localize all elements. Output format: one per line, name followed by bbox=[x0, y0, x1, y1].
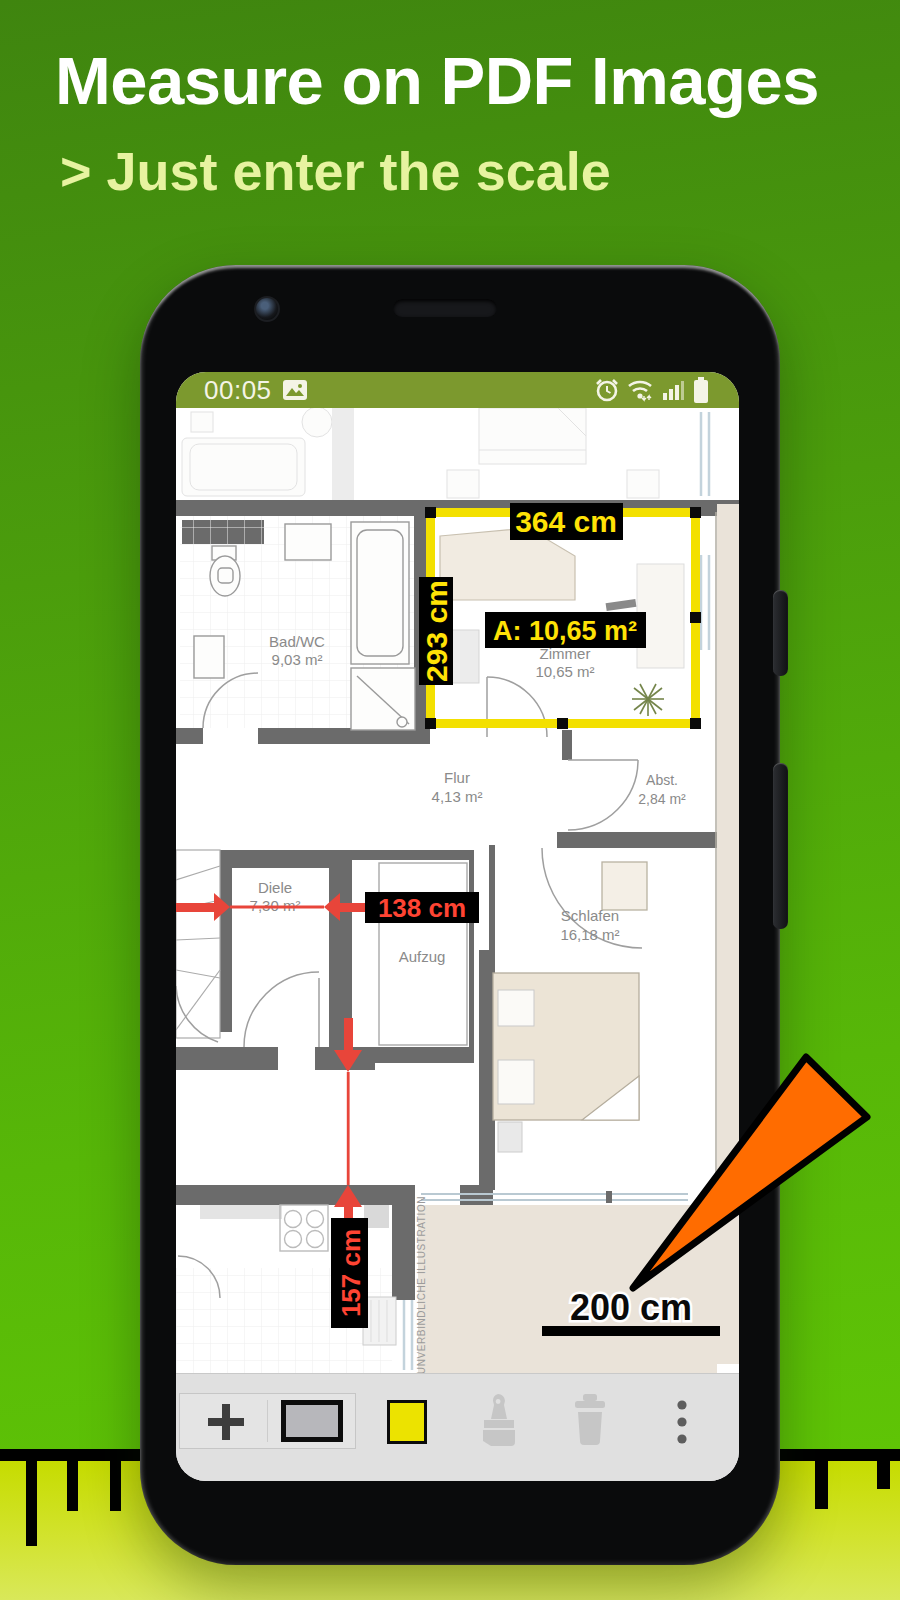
measurement-width-label[interactable]: 364 cm bbox=[510, 503, 623, 540]
rectangle-tool-button[interactable] bbox=[281, 1400, 343, 1442]
ruler-tick bbox=[110, 1461, 121, 1511]
floor-plan[interactable]: Bad/WC 9,03 m² Flur 4,13 m² Abst. 2,84 m… bbox=[176, 408, 739, 1374]
ruler-tick bbox=[877, 1461, 890, 1489]
front-camera bbox=[254, 296, 280, 322]
ruler-tick bbox=[815, 1461, 828, 1509]
measurement-area-label[interactable]: A: 10,65 m² bbox=[485, 612, 646, 648]
power-button bbox=[773, 590, 788, 676]
measurement-height-label[interactable]: 293 cm bbox=[419, 577, 453, 685]
ruler-tick bbox=[67, 1461, 78, 1511]
svg-text:Abst.: Abst. bbox=[646, 772, 678, 788]
alarm-icon bbox=[594, 377, 620, 403]
divider bbox=[267, 1400, 268, 1442]
svg-text:Aufzug: Aufzug bbox=[399, 948, 446, 965]
room-kitchen bbox=[176, 1205, 412, 1374]
room-schlafen: Schlafen 16,18 m² bbox=[493, 862, 647, 1152]
color-swatch-button[interactable] bbox=[387, 1400, 427, 1444]
svg-text:4,13 m²: 4,13 m² bbox=[432, 788, 483, 805]
signal-icon bbox=[662, 378, 686, 402]
page-title: Measure on PDF Images bbox=[55, 42, 819, 119]
clock: 00:05 bbox=[204, 375, 272, 406]
trash-button[interactable] bbox=[570, 1394, 610, 1446]
svg-text:2,84 m²: 2,84 m² bbox=[638, 791, 686, 807]
marketing-screenshot: Measure on PDF Images > Just enter the s… bbox=[0, 0, 900, 1600]
watermark: UNVERBINDLICHE ILLUSTRATION bbox=[416, 1196, 427, 1374]
svg-text:10,65 m²: 10,65 m² bbox=[535, 663, 594, 680]
svg-text:Diele: Diele bbox=[258, 879, 292, 896]
overflow-menu-button[interactable] bbox=[675, 1398, 689, 1448]
shape-tool-group bbox=[179, 1393, 356, 1449]
phone-screen: 00:05 bbox=[176, 372, 739, 1481]
svg-text:Bad/WC: Bad/WC bbox=[269, 633, 325, 650]
terrace: UNVERBINDLICHE ILLUSTRATION bbox=[416, 1191, 717, 1374]
battery-icon bbox=[693, 377, 709, 404]
svg-text:138 cm: 138 cm bbox=[378, 893, 466, 923]
earpiece-speaker bbox=[393, 299, 497, 317]
svg-text:A: 10,65 m²: A: 10,65 m² bbox=[493, 616, 637, 646]
faded-upper-floorplan bbox=[182, 408, 659, 500]
volume-button bbox=[773, 763, 788, 929]
svg-text:Schlafen: Schlafen bbox=[561, 907, 619, 924]
ruler-tick bbox=[26, 1461, 37, 1546]
svg-text:293 cm: 293 cm bbox=[420, 580, 453, 682]
room-badwc: Bad/WC 9,03 m² bbox=[180, 516, 415, 730]
room-diele: Diele 7,30 m² Aufzug bbox=[176, 850, 469, 1047]
svg-text:157 cm: 157 cm bbox=[336, 1229, 366, 1317]
svg-text:Flur: Flur bbox=[444, 769, 470, 786]
status-bar: 00:05 bbox=[176, 372, 739, 408]
wifi-icon bbox=[627, 378, 655, 402]
svg-text:364 cm: 364 cm bbox=[515, 505, 617, 538]
photo-notification-icon bbox=[282, 378, 308, 402]
phone-mockup: 00:05 bbox=[140, 265, 780, 1565]
svg-text:16,18 m²: 16,18 m² bbox=[560, 926, 619, 943]
svg-text:200 cm: 200 cm bbox=[570, 1287, 692, 1328]
app-toolbar bbox=[176, 1373, 739, 1481]
page-subtitle: > Just enter the scale bbox=[60, 140, 611, 202]
paint-brush-button[interactable] bbox=[477, 1394, 521, 1448]
add-button[interactable] bbox=[208, 1404, 244, 1440]
svg-text:9,03 m²: 9,03 m² bbox=[272, 651, 323, 668]
